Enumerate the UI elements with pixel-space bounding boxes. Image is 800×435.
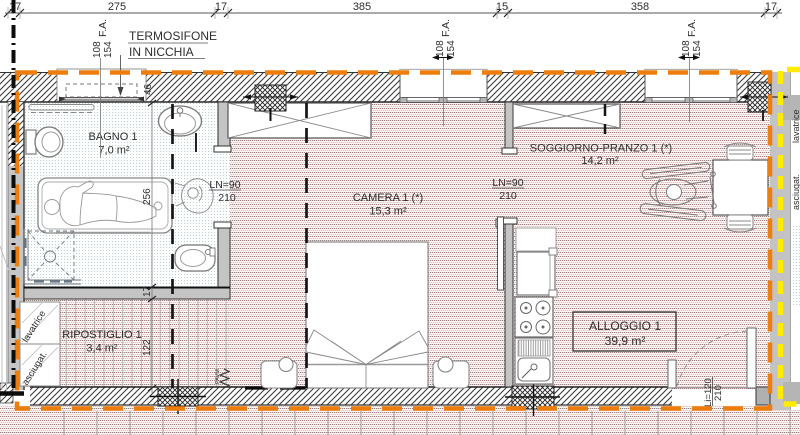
svg-text:IN NICCHIA: IN NICCHIA (129, 45, 194, 59)
svg-text:LN=90: LN=90 (492, 177, 523, 189)
svg-text:256: 256 (142, 188, 153, 205)
svg-text:210: 210 (218, 192, 236, 204)
svg-text:210: 210 (499, 190, 517, 202)
svg-text:17: 17 (765, 1, 777, 13)
svg-text:CAMERA 1 (*): CAMERA 1 (*) (353, 192, 423, 204)
svg-text:TERMOSIFONE: TERMOSIFONE (129, 29, 217, 43)
svg-text:154: 154 (103, 41, 114, 58)
svg-text:LN=90: LN=90 (209, 179, 240, 191)
svg-text:SOGGIORNO-PRANZO 1 (*): SOGGIORNO-PRANZO 1 (*) (530, 143, 672, 155)
svg-text:F.A.: F.A. (97, 19, 109, 37)
svg-text:275: 275 (108, 1, 126, 13)
svg-text:154: 154 (692, 40, 703, 57)
svg-text:154: 154 (446, 40, 457, 57)
svg-text:39,9 m²: 39,9 m² (605, 334, 646, 348)
svg-text:3,4 m²: 3,4 m² (86, 343, 118, 355)
svg-text:lavatrice: lavatrice (791, 109, 800, 143)
svg-text:PAVM: PAVM (215, 369, 221, 384)
svg-text:F.A.: F.A. (686, 19, 698, 37)
svg-text:ALLOGGIO 1: ALLOGGIO 1 (589, 319, 661, 333)
svg-text:358: 358 (631, 1, 649, 13)
svg-text:F.A.: F.A. (440, 19, 452, 37)
svg-text:15: 15 (496, 1, 508, 13)
svg-text:17: 17 (215, 1, 227, 13)
svg-text:108: 108 (681, 40, 692, 57)
svg-text:asciugat.: asciugat. (791, 174, 800, 210)
svg-text:7,0 m²: 7,0 m² (98, 145, 130, 157)
svg-text:385: 385 (353, 1, 371, 13)
svg-text:108: 108 (435, 40, 446, 57)
svg-text:15,3 m²: 15,3 m² (369, 206, 407, 218)
svg-text:14,2 m²: 14,2 m² (581, 155, 619, 167)
svg-text:17: 17 (142, 285, 153, 297)
svg-text:RIPOSTIGLIO 1: RIPOSTIGLIO 1 (62, 329, 141, 341)
svg-text:210: 210 (713, 385, 724, 401)
svg-text:108: 108 (92, 41, 103, 58)
svg-text:122: 122 (142, 339, 153, 356)
svg-text:46: 46 (143, 83, 154, 95)
svg-text:BAGNO 1: BAGNO 1 (89, 131, 138, 143)
